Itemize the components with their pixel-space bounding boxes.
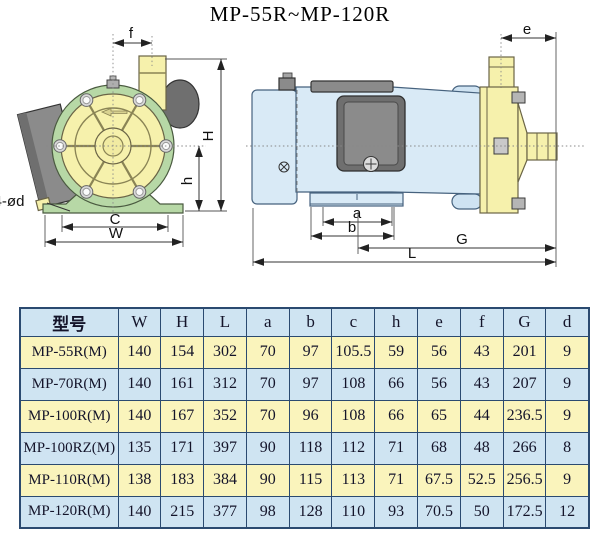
- value-cell: 154: [161, 336, 204, 368]
- value-cell: 9: [546, 336, 589, 368]
- value-cell: 66: [375, 368, 418, 400]
- value-cell: 377: [204, 496, 247, 528]
- table-row: MP-70R(M)14016131270971086656432079: [20, 368, 589, 400]
- value-cell: 70: [246, 400, 289, 432]
- value-cell: 266: [503, 432, 546, 464]
- technical-drawing: f H h C: [0, 26, 600, 278]
- dim-f: f: [113, 26, 152, 43]
- dim-G: G: [358, 212, 556, 254]
- outlet-pipe-side: [489, 57, 514, 88]
- value-cell: 71: [375, 432, 418, 464]
- dim-label-b: b: [348, 219, 356, 236]
- value-cell: 9: [546, 464, 589, 496]
- pump-head: [480, 87, 557, 213]
- inlet-pipe: [527, 133, 557, 160]
- value-cell: 140: [118, 400, 161, 432]
- value-cell: 90: [246, 464, 289, 496]
- model-cell: MP-100R(M): [20, 400, 118, 432]
- page-title: MP-55R~MP-120R: [0, 2, 600, 27]
- value-cell: 105.5: [332, 336, 375, 368]
- value-cell: 352: [204, 400, 247, 432]
- value-cell: 9: [546, 400, 589, 432]
- value-cell: 171: [161, 432, 204, 464]
- value-cell: 71: [375, 464, 418, 496]
- model-cell: MP-120R(M): [20, 496, 118, 528]
- dim-label-L: L: [408, 245, 416, 262]
- value-cell: 108: [332, 368, 375, 400]
- column-header: G: [503, 308, 546, 336]
- value-cell: 59: [375, 336, 418, 368]
- dim-label-f: f: [129, 26, 134, 42]
- value-cell: 112: [332, 432, 375, 464]
- model-cell: MP-110R(M): [20, 464, 118, 496]
- value-cell: 44: [460, 400, 503, 432]
- value-cell: 52.5: [460, 464, 503, 496]
- value-cell: 90: [246, 432, 289, 464]
- model-cell: MP-70R(M): [20, 368, 118, 400]
- column-header: 型号: [20, 308, 118, 336]
- value-cell: 50: [460, 496, 503, 528]
- value-cell: 65: [418, 400, 461, 432]
- value-cell: 236.5: [503, 400, 546, 432]
- dim-label-e: e: [523, 26, 531, 38]
- cover-screw: [364, 157, 379, 172]
- value-cell: 140: [118, 496, 161, 528]
- value-cell: 207: [503, 368, 546, 400]
- value-cell: 68: [418, 432, 461, 464]
- value-cell: 98: [246, 496, 289, 528]
- value-cell: 70.5: [418, 496, 461, 528]
- value-cell: 66: [375, 400, 418, 432]
- value-cell: 56: [418, 336, 461, 368]
- column-header: h: [375, 308, 418, 336]
- header-row: 型号WHLabchefGd: [20, 308, 589, 336]
- dim-label-h: h: [179, 177, 196, 185]
- motor-top-strip: [311, 81, 393, 92]
- value-cell: 115: [289, 464, 332, 496]
- table-row: MP-120R(M)140215377981281109370.550172.5…: [20, 496, 589, 528]
- value-cell: 172.5: [503, 496, 546, 528]
- column-header: L: [204, 308, 247, 336]
- value-cell: 97: [289, 336, 332, 368]
- flange-bolt-bottom: [512, 198, 525, 209]
- dim-label-H: H: [200, 131, 217, 142]
- top-plug: [107, 76, 119, 88]
- value-cell: 135: [118, 432, 161, 464]
- column-header: e: [418, 308, 461, 336]
- value-cell: 70: [246, 336, 289, 368]
- value-cell: 384: [204, 464, 247, 496]
- table-row: MP-110R(M)138183384901151137167.552.5256…: [20, 464, 589, 496]
- column-header: f: [460, 308, 503, 336]
- value-cell: 96: [289, 400, 332, 432]
- spec-table-body: MP-55R(M)1401543027097105.55956432019MP-…: [20, 336, 589, 528]
- table-row: MP-55R(M)1401543027097105.55956432019: [20, 336, 589, 368]
- table-row: MP-100R(M)1401673527096108666544236.59: [20, 400, 589, 432]
- model-cell: MP-55R(M): [20, 336, 118, 368]
- value-cell: 161: [161, 368, 204, 400]
- value-cell: 118: [289, 432, 332, 464]
- value-cell: 140: [118, 336, 161, 368]
- value-cell: 43: [460, 336, 503, 368]
- pump-dimension-sheet: MP-55R~MP-120R: [0, 0, 600, 546]
- front-view: f H h C: [0, 26, 227, 247]
- value-cell: 67.5: [418, 464, 461, 496]
- value-cell: 48: [460, 432, 503, 464]
- value-cell: 201: [503, 336, 546, 368]
- model-cell: MP-100RZ(M): [20, 432, 118, 464]
- value-cell: 113: [332, 464, 375, 496]
- column-header: a: [246, 308, 289, 336]
- endcap-screw: [279, 162, 289, 172]
- value-cell: 8: [546, 432, 589, 464]
- value-cell: 138: [118, 464, 161, 496]
- value-cell: 312: [204, 368, 247, 400]
- column-header: c: [332, 308, 375, 336]
- motor-end-cap: [252, 90, 297, 204]
- value-cell: 167: [161, 400, 204, 432]
- dim-L: L: [253, 208, 556, 266]
- dim-label-W: W: [109, 225, 124, 242]
- spec-table-head: 型号WHLabchefGd: [20, 308, 589, 336]
- spec-table: 型号WHLabchefGd MP-55R(M)1401543027097105.…: [19, 307, 590, 529]
- dim-a: a: [323, 205, 392, 226]
- value-cell: 397: [204, 432, 247, 464]
- value-cell: 110: [332, 496, 375, 528]
- value-cell: 302: [204, 336, 247, 368]
- terminal-box-side: [337, 96, 405, 172]
- lug-bottom: [452, 194, 482, 209]
- dim-label-holes: 4-ød: [0, 193, 24, 210]
- dim-label-G: G: [456, 231, 468, 248]
- value-cell: 9: [546, 368, 589, 400]
- value-cell: 108: [332, 400, 375, 432]
- column-header: W: [118, 308, 161, 336]
- flange-bolt-top: [512, 92, 525, 103]
- table-row: MP-100RZ(M)135171397901181127168482668: [20, 432, 589, 464]
- value-cell: 93: [375, 496, 418, 528]
- column-header: b: [289, 308, 332, 336]
- vent-cap: [279, 73, 295, 90]
- value-cell: 97: [289, 368, 332, 400]
- dim-h: h: [179, 146, 199, 211]
- value-cell: 256.5: [503, 464, 546, 496]
- value-cell: 215: [161, 496, 204, 528]
- column-header: H: [161, 308, 204, 336]
- value-cell: 70: [246, 368, 289, 400]
- value-cell: 12: [546, 496, 589, 528]
- value-cell: 43: [460, 368, 503, 400]
- value-cell: 140: [118, 368, 161, 400]
- value-cell: 56: [418, 368, 461, 400]
- spec-table-container: 型号WHLabchefGd MP-55R(M)1401543027097105.…: [19, 307, 590, 529]
- side-view: e a b G: [246, 26, 586, 267]
- value-cell: 128: [289, 496, 332, 528]
- column-header: d: [546, 308, 589, 336]
- value-cell: 183: [161, 464, 204, 496]
